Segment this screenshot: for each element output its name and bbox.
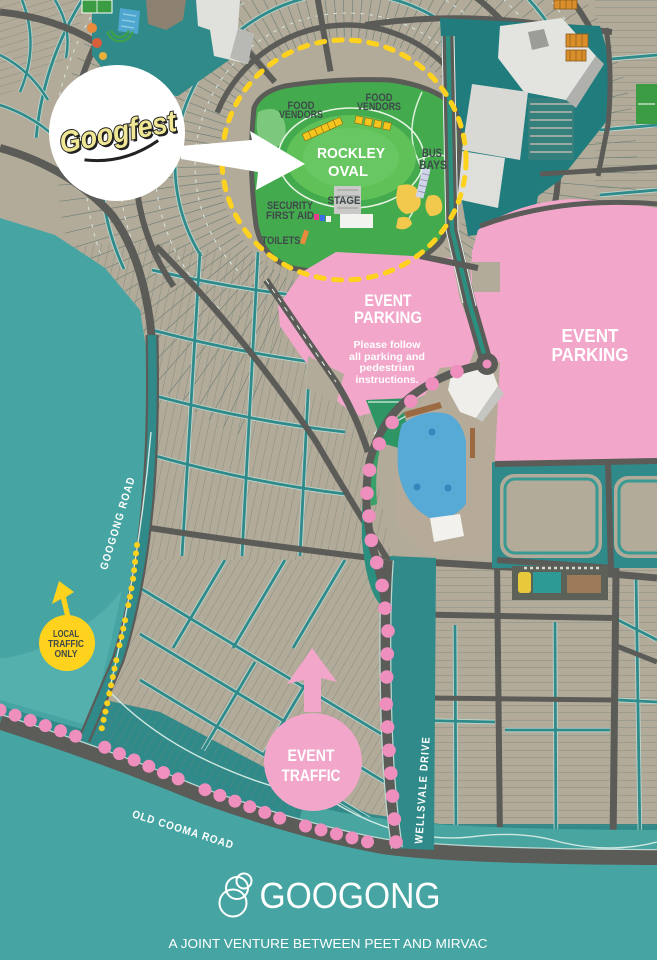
svg-text:instructions.: instructions. bbox=[356, 374, 419, 386]
svg-text:STAGE: STAGE bbox=[328, 195, 361, 207]
svg-text:EVENT: EVENT bbox=[288, 746, 336, 765]
svg-text:BUS: BUS bbox=[422, 148, 442, 160]
svg-text:Please follow: Please follow bbox=[354, 339, 422, 351]
svg-text:TOILETS: TOILETS bbox=[262, 235, 301, 247]
svg-text:OVAL: OVAL bbox=[328, 163, 368, 180]
svg-text:PARKING: PARKING bbox=[354, 309, 422, 327]
svg-text:pedestrian: pedestrian bbox=[360, 362, 415, 374]
svg-text:A JOINT VENTURE BETWEEN PEET A: A JOINT VENTURE BETWEEN PEET AND MIRVAC bbox=[169, 937, 488, 951]
svg-text:VENDORS: VENDORS bbox=[357, 101, 401, 113]
svg-text:GOOGONG: GOOGONG bbox=[260, 875, 441, 916]
svg-text:PARKING: PARKING bbox=[552, 345, 629, 365]
svg-text:EVENT: EVENT bbox=[562, 326, 619, 346]
svg-text:ROCKLEY: ROCKLEY bbox=[317, 145, 385, 162]
svg-text:EVENT: EVENT bbox=[365, 292, 412, 310]
svg-text:BAYS: BAYS bbox=[419, 160, 447, 172]
svg-text:VENDORS: VENDORS bbox=[279, 109, 323, 121]
svg-text:TRAFFIC: TRAFFIC bbox=[282, 766, 341, 785]
svg-text:ONLY: ONLY bbox=[55, 649, 78, 660]
svg-text:FIRST AID: FIRST AID bbox=[266, 210, 314, 222]
